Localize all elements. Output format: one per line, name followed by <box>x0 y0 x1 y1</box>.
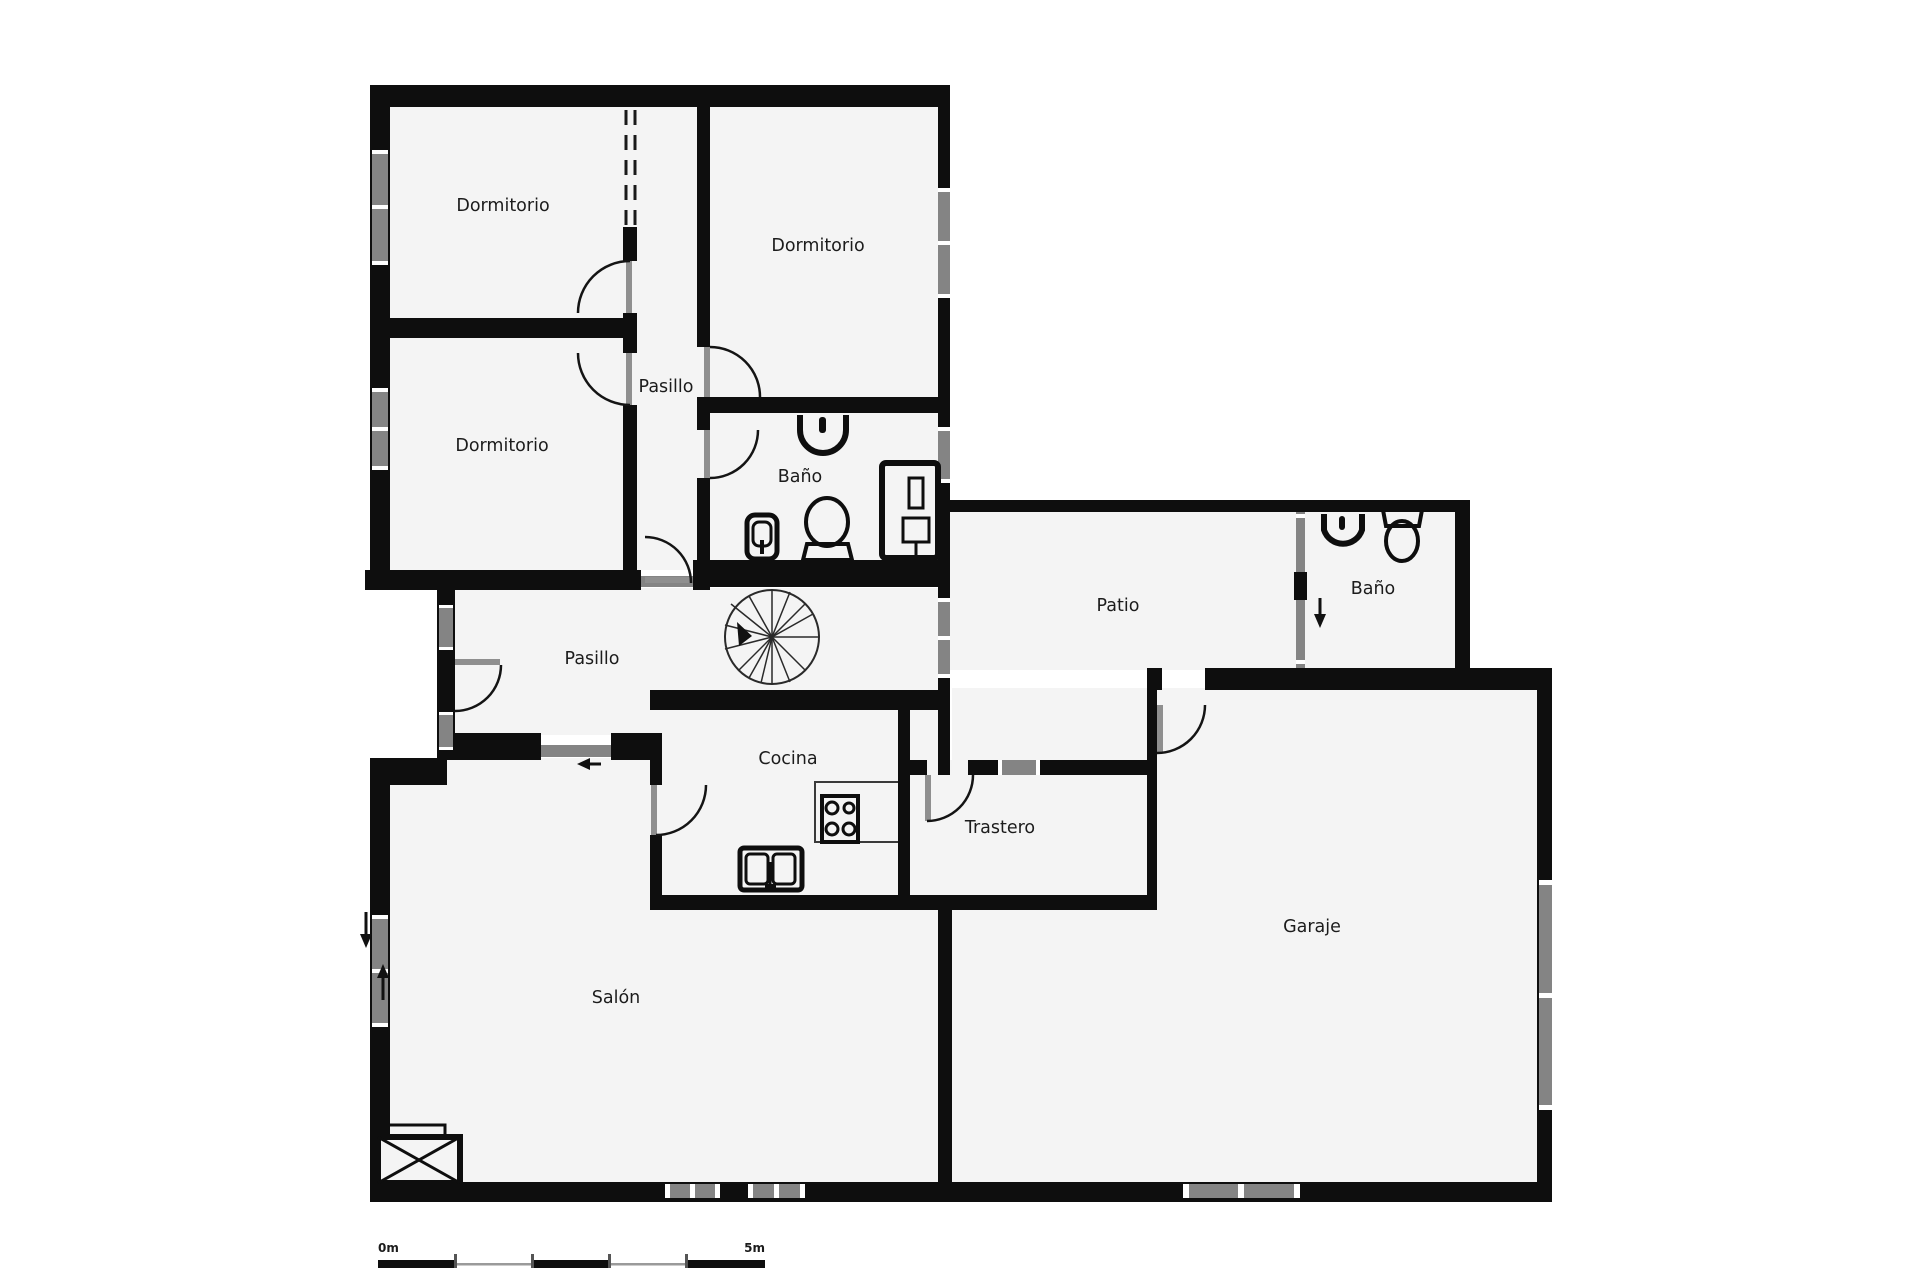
window-trastero <box>998 760 1040 775</box>
wall-garaje-top <box>1205 668 1552 690</box>
label-trastero: Trastero <box>964 818 1035 838</box>
label-bano-1: Baño <box>778 467 823 487</box>
wall-cocina-trastero <box>898 710 910 895</box>
window-pasillo2-upper <box>439 605 453 650</box>
wall-top <box>370 85 950 107</box>
wall-pasillo1-west-b <box>623 313 637 353</box>
window-dorm3-west <box>372 388 388 470</box>
scale-tick-1 <box>454 1254 457 1268</box>
wall-dorm3-bottom <box>365 570 641 590</box>
window-salon-south-2 <box>748 1184 805 1198</box>
scale-tick-3 <box>608 1254 611 1268</box>
wall-bano2-east <box>1455 500 1470 668</box>
wall-pasillo1-east-a <box>697 107 710 347</box>
scale-tick-2 <box>531 1254 534 1268</box>
window-garaje-south <box>1183 1184 1300 1198</box>
scale-end-label: 5m <box>744 1241 765 1255</box>
window-garaje-east <box>1539 880 1552 1110</box>
wall-bano1-top <box>710 397 938 413</box>
scale-tick-4 <box>685 1254 688 1268</box>
scale-seg-2 <box>456 1263 533 1266</box>
wall-cocina-west-a <box>650 733 662 785</box>
wall-bottom <box>370 1182 1552 1202</box>
wall-trastero-top-a <box>910 760 927 775</box>
wall-garaje-top-stub <box>1147 668 1162 690</box>
label-bano-2: Baño <box>1351 579 1396 599</box>
label-salon: Salón <box>592 988 641 1008</box>
label-pasillo-1: Pasillo <box>639 377 694 397</box>
label-pasillo-2: Pasillo <box>565 649 620 669</box>
wall-pasillo1-east-c <box>697 478 710 570</box>
scale-seg-1 <box>378 1260 456 1268</box>
threshold-salon-opening <box>541 745 611 757</box>
wall-bano1-bottom <box>693 560 950 587</box>
wall-trastero-top-c <box>1040 760 1147 775</box>
wall-cocina-top <box>650 690 938 710</box>
label-dormitorio-1: Dormitorio <box>456 196 549 216</box>
window-dorm1-west <box>372 150 388 265</box>
window-salon-south-1 <box>665 1184 720 1198</box>
wall-pasillo1-east-b <box>697 397 710 430</box>
scale-seg-5 <box>687 1260 765 1268</box>
wall-dorm1-dorm3 <box>390 318 637 338</box>
wall-salon-garaje <box>938 910 952 1182</box>
window-hall-east <box>938 598 950 678</box>
window-dorm2-east <box>938 188 950 298</box>
wall-trastero-top-b <box>968 760 998 775</box>
scale-start-label: 0m <box>378 1241 399 1255</box>
wall-cocina-west-b <box>650 835 662 895</box>
scale-bar: 0m 5m <box>378 1241 765 1268</box>
spiral-stair-icon <box>725 590 819 684</box>
window-pasillo2-lower <box>439 712 453 750</box>
wall-pasillo1-west-c <box>623 405 637 570</box>
wall-trastero-garaje <box>1147 668 1157 895</box>
label-cocina: Cocina <box>758 749 817 769</box>
label-patio: Patio <box>1097 596 1140 616</box>
label-garaje: Garaje <box>1283 917 1341 937</box>
bedroom-wing-floor <box>390 107 938 570</box>
label-dormitorio-3: Dormitorio <box>455 436 548 456</box>
scale-seg-4 <box>610 1263 687 1266</box>
floor-plan: Dormitorio Dormitorio Dormitorio Pasillo… <box>0 0 1920 1280</box>
label-dormitorio-2: Dormitorio <box>771 236 864 256</box>
floor-plan-canvas: Dormitorio Dormitorio Dormitorio Pasillo… <box>0 0 1920 1280</box>
wall-pasillo1-west-a <box>623 227 637 261</box>
wall-middle-bottom <box>650 895 1157 910</box>
scale-seg-3 <box>533 1260 610 1268</box>
